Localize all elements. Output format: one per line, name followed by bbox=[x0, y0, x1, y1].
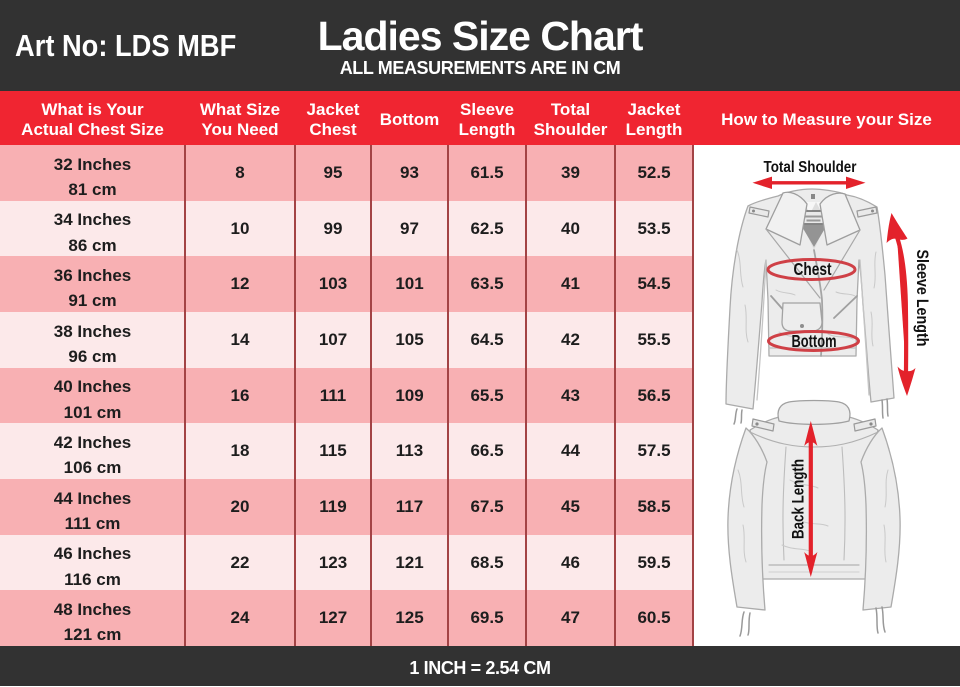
svg-text:Chest: Chest bbox=[794, 259, 832, 279]
svg-text:Total Shoulder: Total Shoulder bbox=[764, 159, 857, 176]
svg-text:Bottom: Bottom bbox=[792, 331, 837, 351]
svg-text:Back Length: Back Length bbox=[789, 459, 808, 539]
svg-text:Sleeve Length: Sleeve Length bbox=[913, 250, 932, 347]
